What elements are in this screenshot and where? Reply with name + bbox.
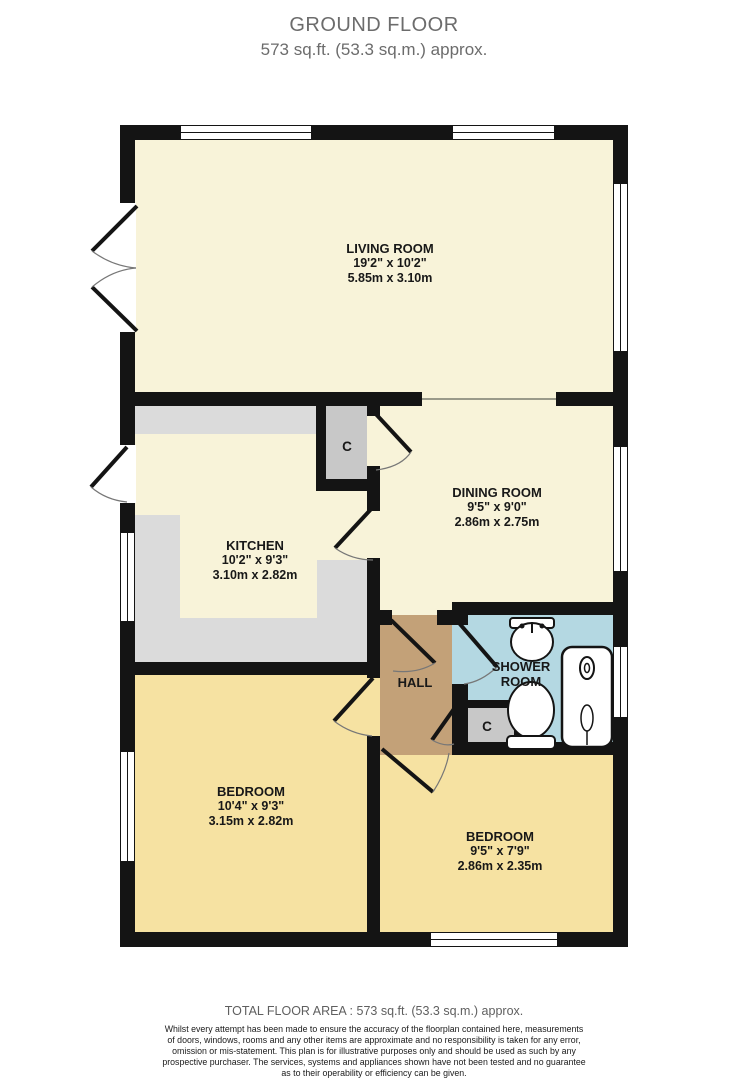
wall: [367, 404, 380, 416]
room-name: SHOWER ROOM: [479, 659, 563, 689]
wall: [452, 742, 628, 755]
wall: [316, 404, 326, 484]
room-size-imperial: 10'4" x 9'3": [151, 799, 351, 814]
room-size-metric: 2.86m x 2.75m: [397, 515, 597, 530]
hall-label: HALL: [375, 675, 455, 690]
room-size-imperial: 19'2" x 10'2": [290, 256, 490, 271]
wall: [380, 610, 392, 625]
room-size-imperial: 9'5" x 7'9": [400, 844, 600, 859]
window: [180, 125, 312, 140]
room-size-metric: 2.86m x 2.35m: [400, 859, 600, 874]
closet-label: C: [331, 439, 363, 454]
closet-label: C: [472, 719, 502, 734]
living-room-label: LIVING ROOM 19'2" x 10'2" 5.85m x 3.10m: [290, 241, 490, 286]
total-floor-area: TOTAL FLOOR AREA : 573 sq.ft. (53.3 sq.m…: [0, 1004, 748, 1018]
wall: [452, 700, 522, 708]
window: [120, 751, 135, 862]
disclaimer-line: prospective purchaser. The services, sys…: [64, 1057, 684, 1068]
disclaimer-line: as to their operability or efficiency ca…: [64, 1068, 684, 1079]
closet-door-gap: [367, 416, 380, 466]
plan-header: GROUND FLOOR 573 sq.ft. (53.3 sq.m.) app…: [0, 14, 748, 60]
window: [613, 446, 628, 572]
bedroom-2-label: BEDROOM 9'5" x 7'9" 2.86m x 2.35m: [400, 829, 600, 874]
room-name: BEDROOM: [400, 829, 600, 844]
wall: [120, 662, 380, 675]
kitchen-door-gap: [367, 511, 380, 558]
room-size-imperial: 9'5" x 9'0": [397, 500, 597, 515]
kitchen-label: KITCHEN 10'2" x 9'3" 3.10m x 2.82m: [155, 538, 355, 583]
wall: [367, 558, 380, 678]
room-size-metric: 3.15m x 2.82m: [151, 814, 351, 829]
floorplan-page: GROUND FLOOR 573 sq.ft. (53.3 sq.m.) app…: [0, 0, 748, 1080]
back-door-opening: [119, 445, 136, 503]
kitchen-counter: [135, 404, 316, 434]
window: [120, 532, 135, 622]
window: [613, 646, 628, 718]
room-name: HALL: [375, 675, 455, 690]
wall: [514, 700, 524, 742]
disclaimer-line: Whilst every attempt has been made to en…: [64, 1024, 684, 1035]
archway-line: [422, 398, 556, 400]
room-name: LIVING ROOM: [290, 241, 490, 256]
disclaimer-line: of doors, windows, rooms and any other i…: [64, 1035, 684, 1046]
page-subtitle: 573 sq.ft. (53.3 sq.m.) approx.: [0, 40, 748, 60]
room-size-metric: 3.10m x 2.82m: [155, 568, 355, 583]
wall: [452, 602, 628, 615]
wall: [452, 602, 468, 625]
page-title: GROUND FLOOR: [0, 14, 748, 37]
room-name: DINING ROOM: [397, 485, 597, 500]
room-name: KITCHEN: [155, 538, 355, 553]
window: [452, 125, 555, 140]
dining-room-label: DINING ROOM 9'5" x 9'0" 2.86m x 2.75m: [397, 485, 597, 530]
room-size-imperial: 10'2" x 9'3": [155, 553, 355, 568]
shower-room-label: SHOWER ROOM: [479, 659, 563, 689]
french-door-opening: [119, 203, 136, 332]
wall: [556, 392, 628, 406]
disclaimer: Whilst every attempt has been made to en…: [64, 1024, 684, 1080]
window: [613, 183, 628, 352]
wall: [367, 466, 380, 511]
room-name: BEDROOM: [151, 784, 351, 799]
disclaimer-line: omission or mis-statement. This plan is …: [64, 1046, 684, 1057]
window: [430, 932, 558, 947]
room-size-metric: 5.85m x 3.10m: [290, 271, 490, 286]
wall: [367, 736, 380, 935]
bedroom-1-label: BEDROOM 10'4" x 9'3" 3.15m x 2.82m: [151, 784, 351, 829]
